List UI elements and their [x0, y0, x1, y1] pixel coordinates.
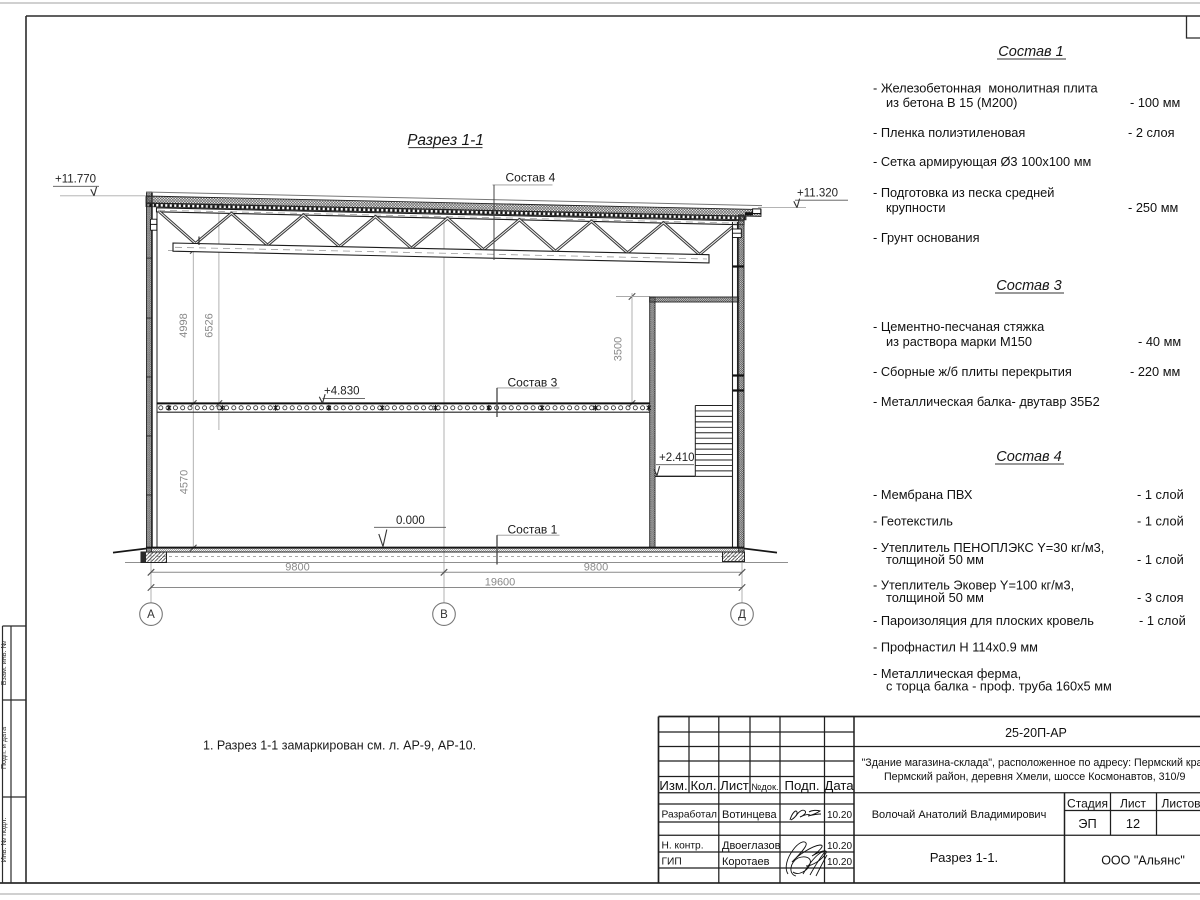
svg-text:- Профнастил Н 114х0.9 мм: - Профнастил Н 114х0.9 мм	[873, 640, 1038, 655]
svg-text:- Цементно-песчаная стяжка: - Цементно-песчаная стяжка	[873, 319, 1045, 334]
svg-text:- Мембрана ПВХ: - Мембрана ПВХ	[873, 487, 973, 502]
svg-text:Листов: Листов	[1162, 797, 1200, 811]
svg-text:- 1 слой: - 1 слой	[1137, 487, 1184, 502]
svg-text:- 1 слой: - 1 слой	[1137, 552, 1184, 567]
svg-text:- Подготовка из песка средней: - Подготовка из песка средней	[873, 185, 1054, 200]
svg-text:- 220 мм: - 220 мм	[1130, 364, 1180, 379]
svg-text:6526: 6526	[204, 313, 216, 337]
svg-text:Состав 1: Состав 1	[508, 523, 558, 537]
svg-text:- Пароизоляция для плоских кро: - Пароизоляция для плоских кровель	[873, 613, 1094, 628]
svg-text:толщиной 50 мм: толщиной 50 мм	[886, 552, 984, 567]
svg-text:из раствора марки М150: из раствора марки М150	[886, 334, 1032, 349]
svg-text:А: А	[147, 609, 155, 621]
svg-text:Состав 3: Состав 3	[996, 278, 1061, 294]
svg-text:Волочай Анатолий Владимирович: Волочай Анатолий Владимирович	[872, 809, 1047, 821]
svg-text:- 1 слой: - 1 слой	[1137, 514, 1184, 529]
svg-text:Коротаев: Коротаев	[722, 856, 770, 868]
svg-text:Пермский район, деревня Хмели,: Пермский район, деревня Хмели, шоссе Кос…	[884, 771, 1185, 783]
svg-text:Изм.: Изм.	[659, 778, 687, 793]
svg-text:Подп.: Подп.	[784, 778, 819, 793]
svg-text:Взам. инв. №: Взам. инв. №	[0, 640, 8, 685]
svg-text:1. Разрез 1-1 замаркирован см.: 1. Разрез 1-1 замаркирован см. л. АР-9, …	[203, 738, 476, 752]
svg-text:10.20: 10.20	[827, 841, 852, 852]
svg-text:- Геотекстиль: - Геотекстиль	[873, 514, 953, 529]
svg-text:10.20: 10.20	[827, 810, 852, 821]
svg-text:Вотинцева: Вотинцева	[722, 809, 777, 821]
svg-text:0.000: 0.000	[396, 515, 425, 527]
svg-text:- Железобетонная монолитная п: - Железобетонная монолитная плита	[873, 80, 1099, 95]
svg-text:В: В	[440, 609, 448, 621]
svg-text:10.20: 10.20	[827, 857, 852, 868]
svg-text:- Сборные ж/б плиты перекрытия: - Сборные ж/б плиты перекрытия	[873, 364, 1072, 379]
svg-text:9800: 9800	[584, 561, 608, 573]
svg-text:Двоеглазов: Двоеглазов	[722, 840, 781, 852]
svg-text:Кол.: Кол.	[690, 778, 716, 793]
svg-text:Состав 4: Состав 4	[996, 449, 1061, 465]
svg-text:+4.830: +4.830	[324, 386, 360, 398]
svg-text:+2.410: +2.410	[659, 452, 695, 464]
svg-text:Инв. № подл.: Инв. № подл.	[0, 818, 8, 863]
svg-text:- 250 мм: - 250 мм	[1128, 200, 1178, 215]
svg-text:- Сетка армирующая Ø3 100х100: - Сетка армирующая Ø3 100х100 мм	[873, 154, 1091, 169]
svg-text:"Здание магазина-склада", расп: "Здание магазина-склада", расположенное …	[862, 757, 1200, 769]
svg-text:9800: 9800	[285, 561, 309, 573]
svg-text:Разрез 1-1: Разрез 1-1	[407, 132, 484, 149]
svg-text:Н. контр.: Н. контр.	[662, 840, 704, 851]
svg-text:12: 12	[1126, 816, 1140, 831]
svg-text:Разрез 1-1.: Разрез 1-1.	[930, 850, 998, 865]
svg-text:- Грунт основания: - Грунт основания	[873, 230, 980, 245]
svg-text:с торца балка - проф. труба 16: с торца балка - проф. труба 160х5 мм	[886, 679, 1112, 694]
svg-text:Лист: Лист	[1120, 797, 1147, 811]
svg-text:Подп. и дата: Подп. и дата	[0, 727, 8, 769]
svg-text:Лист: Лист	[720, 778, 749, 793]
svg-text:+11.770: +11.770	[55, 174, 96, 186]
svg-text:- 3 слоя: - 3 слоя	[1137, 590, 1184, 605]
svg-text:Состав 3: Состав 3	[508, 376, 558, 390]
svg-text:4998: 4998	[178, 313, 190, 337]
svg-text:крупности: крупности	[886, 200, 946, 215]
svg-text:- 40 мм: - 40 мм	[1138, 334, 1181, 349]
svg-text:- 1 слой: - 1 слой	[1139, 613, 1186, 628]
svg-text:- Металлическая балка- двутавр: - Металлическая балка- двутавр 35Б2	[873, 394, 1100, 409]
svg-text:№док.: №док.	[751, 782, 778, 792]
svg-text:ООО "Альянс": ООО "Альянс"	[1101, 854, 1185, 868]
svg-text:из бетона В 15 (М200): из бетона В 15 (М200)	[886, 95, 1017, 110]
svg-text:ЭП: ЭП	[1078, 816, 1096, 831]
svg-text:Разработал: Разработал	[662, 809, 718, 821]
svg-text:Состав 4: Состав 4	[506, 171, 556, 185]
svg-text:Д: Д	[738, 609, 746, 621]
svg-text:3500: 3500	[613, 337, 625, 361]
svg-text:- 2 слоя: - 2 слоя	[1128, 125, 1175, 140]
svg-text:Дата: Дата	[824, 778, 854, 793]
svg-text:19600: 19600	[485, 576, 516, 588]
svg-text:Состав 1: Состав 1	[998, 44, 1063, 60]
svg-text:ГИП: ГИП	[662, 856, 682, 867]
svg-text:+11.320: +11.320	[797, 188, 838, 200]
svg-text:4570: 4570	[179, 470, 191, 494]
svg-text:Стадия: Стадия	[1067, 797, 1108, 811]
svg-text:25-20П-АР: 25-20П-АР	[1005, 726, 1067, 740]
svg-text:- 100 мм: - 100 мм	[1130, 95, 1180, 110]
svg-text:толщиной 50 мм: толщиной 50 мм	[886, 590, 984, 605]
svg-text:- Пленка полиэтиленовая: - Пленка полиэтиленовая	[873, 125, 1025, 140]
